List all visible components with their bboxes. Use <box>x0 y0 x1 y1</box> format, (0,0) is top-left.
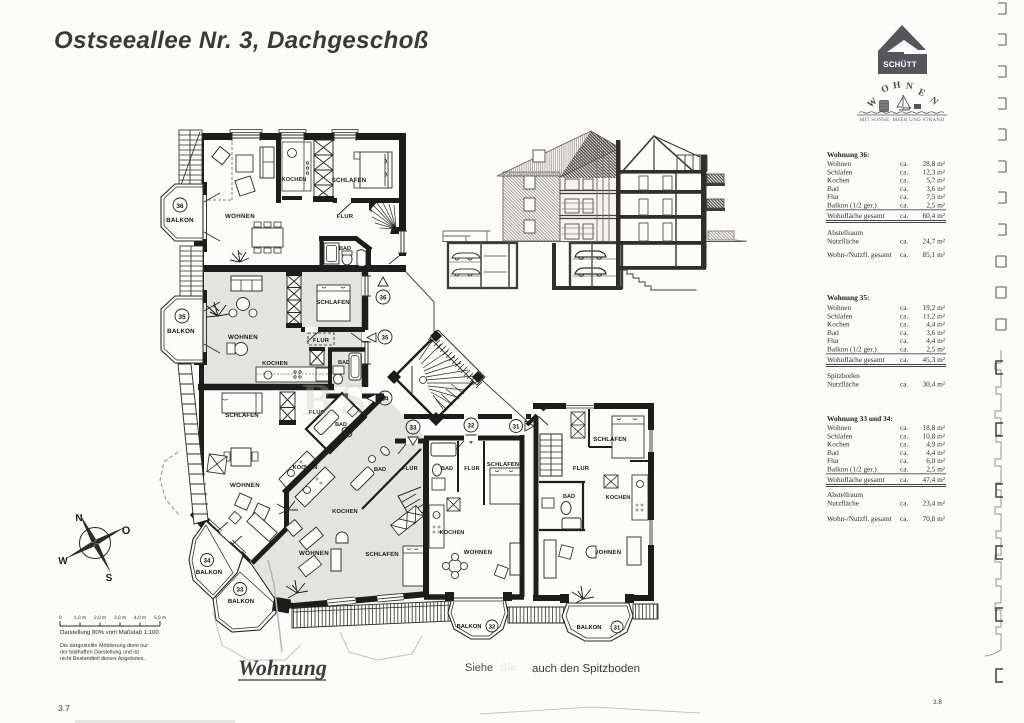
svg-text:Wohnfläche gesamt: Wohnfläche gesamt <box>827 211 885 220</box>
svg-text:KOCHEN: KOCHEN <box>262 360 288 367</box>
svg-text:30,4 m²: 30,4 m² <box>923 379 946 388</box>
svg-text:Die dargestellte Möblierung di: Die dargestellte Möblierung dient nur <box>60 643 148 649</box>
svg-text:ca.: ca. <box>900 475 908 484</box>
svg-text:SCHLAFEN: SCHLAFEN <box>487 461 519 468</box>
svg-text:BALKON: BALKON <box>167 328 195 335</box>
svg-text:32: 32 <box>489 624 496 631</box>
svg-text:Wohn-/Nutzfl. gesamt: Wohn-/Nutzfl. gesamt <box>827 250 892 259</box>
svg-text:Wohnung 36:: Wohnung 36: <box>827 150 870 159</box>
svg-text:Nutzfläche: Nutzfläche <box>827 498 859 507</box>
svg-text:36: 36 <box>176 203 184 210</box>
svg-text:MIT SONNE, MEER UND STRAND: MIT SONNE, MEER UND STRAND <box>860 117 945 123</box>
svg-text:FLUR: FLUR <box>464 466 480 472</box>
svg-text:Wohnfläche gesamt: Wohnfläche gesamt <box>827 475 885 484</box>
svg-text:KOCHEN: KOCHEN <box>332 508 358 515</box>
svg-text:ca.: ca. <box>900 514 908 523</box>
svg-text:36: 36 <box>380 295 387 302</box>
svg-text:Balkon (1/2 ger.): Balkon (1/2 ger.) <box>827 201 877 210</box>
svg-text:Wohn-/Nutzfl. gesamt: Wohn-/Nutzfl. gesamt <box>827 514 892 523</box>
svg-text:33: 33 <box>410 425 417 432</box>
svg-text:ca.: ca. <box>900 345 908 354</box>
svg-text:KOCHEN: KOCHEN <box>282 177 307 183</box>
svg-text:BALKON: BALKON <box>457 623 482 630</box>
svg-text:SCHLAFEN: SCHLAFEN <box>365 551 398 558</box>
svg-text:auch den Spitzboden: auch den Spitzboden <box>532 663 640 675</box>
svg-text:23,4 m²: 23,4 m² <box>923 498 946 507</box>
svg-text:Balkon (1/2 ger.): Balkon (1/2 ger.) <box>827 465 877 474</box>
svg-text:Sie: Sie <box>500 662 516 674</box>
svg-text:Balkon (1/2 ger.): Balkon (1/2 ger.) <box>827 345 877 354</box>
svg-text:Darstellung 80% vom Maßstab 1:: Darstellung 80% vom Maßstab 1:100 <box>60 629 159 636</box>
svg-text:SCHLAFEN: SCHLAFEN <box>593 436 626 443</box>
svg-text:FLUR: FLUR <box>313 338 330 344</box>
svg-text:WOHNEN: WOHNEN <box>230 482 260 489</box>
svg-text:BAD: BAD <box>338 360 350 366</box>
svg-text:WOHNEN: WOHNEN <box>225 213 255 220</box>
svg-text:N: N <box>75 513 82 524</box>
svg-text:WOHNEN: WOHNEN <box>228 334 258 341</box>
svg-text:70,8 m²: 70,8 m² <box>923 514 946 523</box>
svg-text:5,0 m: 5,0 m <box>154 615 166 621</box>
svg-text:2,5 m²: 2,5 m² <box>926 345 946 354</box>
svg-text:34: 34 <box>382 396 389 403</box>
svg-text:Wohnung 35:: Wohnung 35: <box>827 293 870 302</box>
svg-text:Nutzfläche: Nutzfläche <box>827 379 859 388</box>
svg-text:WOHNEN: WOHNEN <box>593 549 622 556</box>
svg-text:nicht Bestandteil dieses Angeb: nicht Bestandteil dieses Angebotes. <box>60 656 145 662</box>
svg-text:KOCHEN: KOCHEN <box>440 530 465 536</box>
svg-text:Wohnfläche gesamt: Wohnfläche gesamt <box>827 355 885 364</box>
svg-text:31: 31 <box>614 625 621 632</box>
svg-text:2,0 m: 2,0 m <box>94 615 106 621</box>
svg-text:Wohnung: Wohnung <box>238 655 327 680</box>
svg-text:ca.: ca. <box>900 211 908 220</box>
svg-text:S: S <box>106 573 113 584</box>
svg-text:BAD: BAD <box>563 494 575 500</box>
svg-text:BALKON: BALKON <box>228 598 254 605</box>
svg-text:4,0 m: 4,0 m <box>134 615 146 621</box>
svg-text:der bildhaften Darstellung und: der bildhaften Darstellung und ist <box>60 650 139 656</box>
svg-text:ca.: ca. <box>900 236 908 245</box>
svg-text:45,3 m²: 45,3 m² <box>923 355 946 364</box>
svg-text:3.8: 3.8 <box>933 699 942 706</box>
svg-text:Ostseeallee Nr. 3, Dachgeschoß: Ostseeallee Nr. 3, Dachgeschoß <box>54 27 429 54</box>
svg-text:ca.: ca. <box>900 379 908 388</box>
svg-text:85,1 m²: 85,1 m² <box>923 250 946 259</box>
svg-text:3.7: 3.7 <box>58 703 70 713</box>
svg-text:32: 32 <box>468 423 475 430</box>
svg-text:SCHLAFEN: SCHLAFEN <box>332 177 367 184</box>
svg-text:Siehe: Siehe <box>465 662 493 674</box>
svg-text:34: 34 <box>204 558 211 565</box>
svg-text:SCHLAFEN: SCHLAFEN <box>225 412 258 419</box>
svg-text:O: O <box>122 525 131 537</box>
svg-text:KOCHEN: KOCHEN <box>606 495 631 501</box>
svg-text:SCHÜTT: SCHÜTT <box>883 60 917 69</box>
svg-text:BALKON: BALKON <box>166 217 194 224</box>
svg-text:BALKON: BALKON <box>577 624 602 631</box>
svg-text:BALKON: BALKON <box>196 569 222 576</box>
svg-text:1,0 m: 1,0 m <box>74 615 86 621</box>
svg-text:2,5 m²: 2,5 m² <box>926 465 946 474</box>
svg-text:ca.: ca. <box>900 355 908 364</box>
svg-text:BAD: BAD <box>441 466 453 472</box>
svg-text:ca.: ca. <box>900 201 908 210</box>
svg-text:35: 35 <box>178 314 186 321</box>
svg-text:3,0 m: 3,0 m <box>114 615 126 621</box>
svg-text:WOHNEN: WOHNEN <box>464 549 493 556</box>
svg-text:BAD: BAD <box>374 467 386 473</box>
svg-text:Nutzfläche: Nutzfläche <box>827 236 859 245</box>
svg-text:35: 35 <box>382 335 389 342</box>
svg-text:0: 0 <box>59 615 62 621</box>
svg-text:ca.: ca. <box>900 498 908 507</box>
svg-text:2,5 m²: 2,5 m² <box>926 201 946 210</box>
svg-text:47,4 m²: 47,4 m² <box>923 475 946 484</box>
svg-text:FLUR: FLUR <box>337 214 354 220</box>
svg-text:60,4 m²: 60,4 m² <box>923 211 946 220</box>
svg-text:31: 31 <box>513 424 520 431</box>
svg-text:ca.: ca. <box>900 465 908 474</box>
svg-text:FLUR: FLUR <box>573 466 590 472</box>
svg-text:24,7 m²: 24,7 m² <box>923 236 946 245</box>
svg-text:ca.: ca. <box>900 250 908 259</box>
svg-text:33: 33 <box>237 587 244 594</box>
svg-text:Wohnung 33 und 34:: Wohnung 33 und 34: <box>827 414 893 423</box>
svg-text:BS: BS <box>302 374 374 425</box>
svg-text:SCHLAFEN: SCHLAFEN <box>316 299 349 306</box>
svg-text:W: W <box>58 556 68 567</box>
